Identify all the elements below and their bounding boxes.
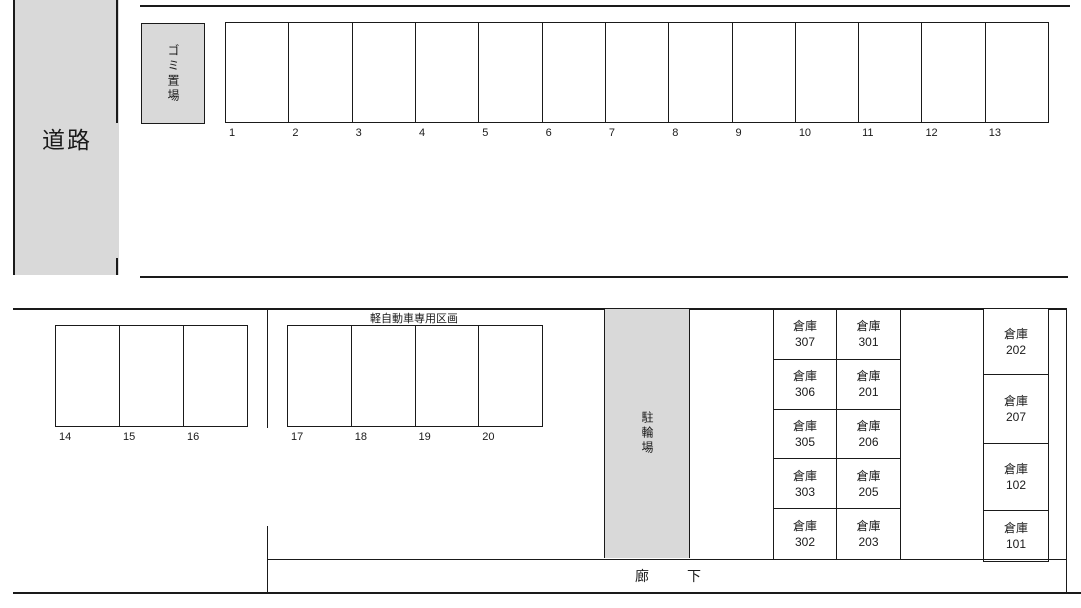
parking-stall-number-6: 6: [546, 127, 552, 139]
warehouse-unit-301: 倉庫301: [837, 310, 900, 360]
bicycle-parking-label: 駐輪場: [641, 411, 653, 456]
parking-stall-15: 15: [119, 326, 183, 426]
warehouse-unit-prefix: 倉庫: [856, 418, 880, 434]
warehouse-unit-prefix: 倉庫: [1004, 393, 1028, 409]
warehouse-unit-307: 倉庫307: [774, 310, 837, 360]
warehouse-unit-number: 207: [1006, 409, 1026, 425]
parking-stall-14: 14: [56, 326, 119, 426]
warehouse-unit-102: 倉庫102: [984, 444, 1048, 511]
warehouse-unit-prefix: 倉庫: [793, 518, 817, 534]
road-right-border-upper: [116, 0, 118, 123]
parking-stall-number-3: 3: [356, 127, 362, 139]
parking-stall-number-13: 13: [989, 127, 1001, 139]
parking-stall-number-8: 8: [672, 127, 678, 139]
parking-stall-19: 19: [415, 326, 479, 426]
warehouse-unit-prefix: 倉庫: [856, 518, 880, 534]
warehouse-unit-number: 302: [795, 534, 815, 550]
parking-stall-4: 4: [415, 23, 478, 122]
parking-stall-1: 1: [226, 23, 288, 122]
warehouse-unit-201: 倉庫201: [837, 360, 900, 410]
parking-stall-number-7: 7: [609, 127, 615, 139]
corridor-label: 廊 下: [603, 566, 733, 586]
parking-stall-18: 18: [351, 326, 415, 426]
parking-stall-7: 7: [605, 23, 668, 122]
parking-stall-number-14: 14: [59, 431, 71, 443]
garbage-storage-area: ゴミ置場: [141, 23, 205, 124]
bottom-boundary-line: [13, 592, 1081, 594]
warehouse-unit-prefix: 倉庫: [793, 368, 817, 384]
warehouse-unit-number: 201: [858, 384, 878, 400]
kei-car-section-label: 軽自動車専用区画: [287, 310, 541, 326]
warehouse-unit-101: 倉庫101: [984, 511, 1048, 561]
warehouse-block-right: 倉庫202倉庫207倉庫102倉庫101: [983, 308, 1049, 562]
road-right-border-lower: [116, 258, 118, 275]
warehouse-unit-305: 倉庫305: [774, 410, 837, 460]
bicycle-parking-area: 駐輪場: [604, 309, 690, 558]
parking-row-14-16: 141516: [55, 325, 248, 427]
warehouse-unit-prefix: 倉庫: [856, 468, 880, 484]
parking-row-17-20: 17181920: [287, 325, 543, 427]
parking-stall-16: 16: [183, 326, 247, 426]
warehouse-unit-prefix: 倉庫: [793, 418, 817, 434]
parking-row-1-13: 12345678910111213: [225, 22, 1049, 123]
warehouse-unit-303: 倉庫303: [774, 459, 837, 509]
corridor-top-line: [267, 559, 1067, 560]
parking-stall-number-18: 18: [355, 431, 367, 443]
parking-stall-5: 5: [478, 23, 541, 122]
warehouse-unit-number: 202: [1006, 342, 1026, 358]
warehouse-unit-number: 203: [858, 534, 878, 550]
mid-boundary-line: [140, 276, 1068, 278]
warehouse-unit-203: 倉庫203: [837, 509, 900, 559]
top-boundary-line: [140, 5, 1070, 7]
parking-stall-17: 17: [288, 326, 351, 426]
corridor-label-char-1: 廊: [635, 566, 649, 586]
warehouse-unit-number: 101: [1006, 536, 1026, 552]
warehouse-unit-number: 306: [795, 384, 815, 400]
parking-stall-number-11: 11: [862, 127, 873, 139]
warehouse-unit-prefix: 倉庫: [1004, 520, 1028, 536]
parking-stall-number-5: 5: [482, 127, 488, 139]
parking-stall-number-4: 4: [419, 127, 425, 139]
warehouse-unit-prefix: 倉庫: [856, 318, 880, 334]
warehouse-unit-number: 301: [858, 334, 878, 350]
road-label: 道路: [42, 121, 92, 155]
warehouse-unit-207: 倉庫207: [984, 375, 1048, 444]
warehouse-unit-number: 303: [795, 484, 815, 500]
parking-stall-10: 10: [795, 23, 858, 122]
warehouse-unit-prefix: 倉庫: [793, 468, 817, 484]
warehouse-unit-302: 倉庫302: [774, 509, 837, 559]
parking-stall-12: 12: [921, 23, 984, 122]
parking-stall-8: 8: [668, 23, 731, 122]
parking-stall-3: 3: [352, 23, 415, 122]
warehouse-unit-prefix: 倉庫: [793, 318, 817, 334]
warehouse-unit-number: 307: [795, 334, 815, 350]
parking-stall-13: 13: [985, 23, 1048, 122]
warehouse-unit-prefix: 倉庫: [1004, 326, 1028, 342]
parking-stall-number-10: 10: [799, 127, 811, 139]
warehouse-unit-prefix: 倉庫: [1004, 461, 1028, 477]
parking-stall-9: 9: [732, 23, 795, 122]
warehouse-unit-number: 102: [1006, 477, 1026, 493]
parking-stall-11: 11: [858, 23, 921, 122]
warehouse-unit-number: 305: [795, 434, 815, 450]
parking-stall-number-2: 2: [292, 127, 298, 139]
parking-stall-6: 6: [542, 23, 605, 122]
warehouse-unit-number: 205: [858, 484, 878, 500]
parking-stall-number-1: 1: [229, 127, 235, 139]
parking-stall-number-15: 15: [123, 431, 135, 443]
parking-stall-2: 2: [288, 23, 351, 122]
warehouse-unit-206: 倉庫206: [837, 410, 900, 460]
right-outer-line: [1066, 308, 1067, 593]
warehouse-unit-prefix: 倉庫: [856, 368, 880, 384]
warehouse-unit-number: 206: [858, 434, 878, 450]
warehouse-block-300s: 倉庫307倉庫301倉庫306倉庫201倉庫305倉庫206倉庫303倉庫205…: [773, 309, 901, 560]
parking-stall-number-12: 12: [925, 127, 937, 139]
parking-stall-20: 20: [478, 326, 542, 426]
parking-stall-number-20: 20: [482, 431, 494, 443]
parking-stall-number-9: 9: [736, 127, 742, 139]
warehouse-unit-205: 倉庫205: [837, 459, 900, 509]
corridor-label-char-2: 下: [687, 566, 701, 586]
parking-stall-number-19: 19: [419, 431, 431, 443]
parking-stall-number-16: 16: [187, 431, 199, 443]
garbage-storage-label: ゴミ置場: [167, 44, 179, 104]
warehouse-unit-202: 倉庫202: [984, 309, 1048, 375]
road-area: 道路: [13, 0, 119, 275]
parking-stall-number-17: 17: [291, 431, 303, 443]
warehouse-unit-306: 倉庫306: [774, 360, 837, 410]
divider-line-upper: [267, 309, 268, 428]
